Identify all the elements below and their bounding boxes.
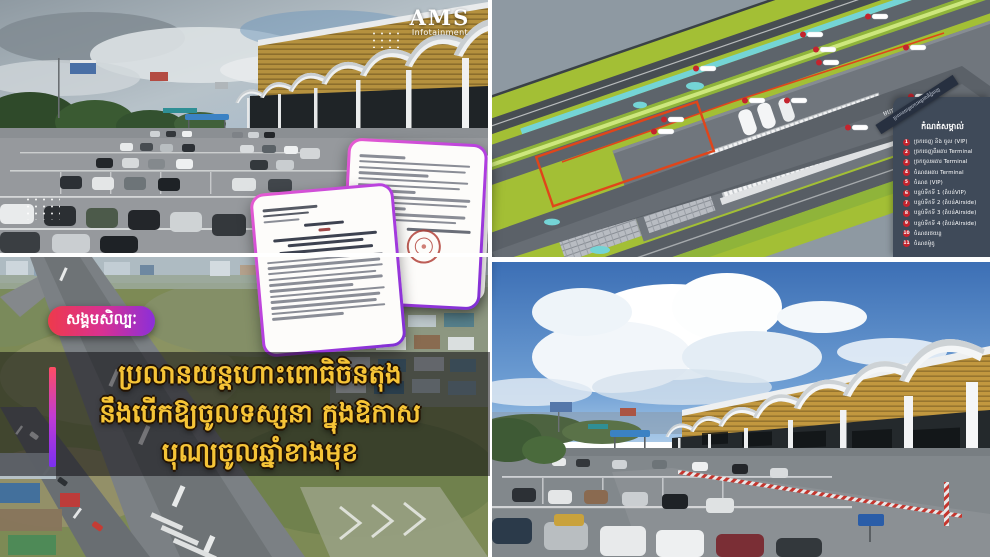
brand-name: AMS: [404, 5, 476, 30]
legend-title: កំណត់សម្គាល់: [903, 121, 982, 133]
legend-item: 10ចំណតរថយន្ត: [903, 229, 990, 239]
headline-accent-bar: [49, 367, 56, 467]
legend-item: 1ច្រកចេញ និង ចូល (VIP): [903, 137, 990, 147]
legend-marker: 3: [903, 159, 910, 166]
headline-line-1: ប្រលានយន្តហោះពោធិចិនតុង: [60, 356, 460, 395]
brand-logo: AMS Infotainment: [404, 5, 476, 37]
brand-tagline: Infotainment: [404, 28, 476, 37]
legend-item: 5ចំណត (VIP): [903, 178, 990, 188]
legend-marker: 1: [903, 139, 910, 146]
dot-grid-decoration: [24, 196, 60, 220]
diagram-legend: ប្រលានយន្តហោះអន្តរជាតិភ្នំពេញ កំណត់សម្គា…: [893, 97, 990, 257]
dot-grid-decoration: [370, 30, 404, 48]
photo-terminal-parking-bottom: [492, 262, 990, 557]
legend-item: 11ចំណតម៉ូតូ: [903, 239, 990, 249]
legend-marker: 6: [903, 190, 910, 197]
legend-marker: 2: [903, 149, 910, 156]
legend-marker: 10: [903, 230, 910, 237]
news-collage-canvas: មហាវិថីសហព័ន្ធរុស្ស៊ី: [0, 0, 990, 557]
left-horizontal-divider: [0, 253, 488, 257]
legend-item: 6បន្ទប់ទឹកទី 1 (តំបន់VIP): [903, 188, 990, 198]
airport-site-diagram: មហាវិថីសហព័ន្ធរុស្ស៊ី: [492, 0, 990, 257]
legend-marker: 8: [903, 210, 910, 217]
legend-marker: 11: [903, 240, 910, 247]
legend-item: 3ច្រកចូលអគារ Terminal: [903, 157, 990, 167]
document-letter-1: [249, 182, 407, 358]
terminal-sky-photo-art: [492, 262, 990, 557]
legend-item: 2ច្រកចេញពីអគារ Terminal: [903, 147, 990, 157]
category-badge: សង្គមសិល្បៈ: [48, 306, 155, 336]
legend-marker: 7: [903, 200, 910, 207]
legend-item: 9បន្ទប់ទឹកទី 4 (តំបន់Airside): [903, 219, 990, 229]
legend-marker: 5: [903, 179, 910, 186]
headline-line-2: នឹងបើកឱ្យចូលទស្សនា ក្នុងឱកាស: [60, 395, 460, 434]
headline: ប្រលានយន្តហោះពោធិចិនតុង នឹងបើកឱ្យចូលទស្ស…: [60, 356, 460, 473]
right-horizontal-divider: [492, 257, 990, 262]
official-seal-stamp: [405, 228, 442, 265]
headline-line-3: បុណ្យចូលឆ្នាំខាងមុខ: [60, 434, 460, 473]
letter-1-paper: [252, 185, 403, 354]
legend-marker: 4: [903, 169, 910, 176]
legend-marker: 9: [903, 220, 910, 227]
legend-item: 4ចំណតអគារ Terminal: [903, 168, 990, 178]
legend-item: 8បន្ទប់ទឹកទី 3 (តំបន់Airside): [903, 208, 990, 218]
legend-item: 7បន្ទប់ទឹកទី 2 (តំបន់Airside): [903, 198, 990, 208]
